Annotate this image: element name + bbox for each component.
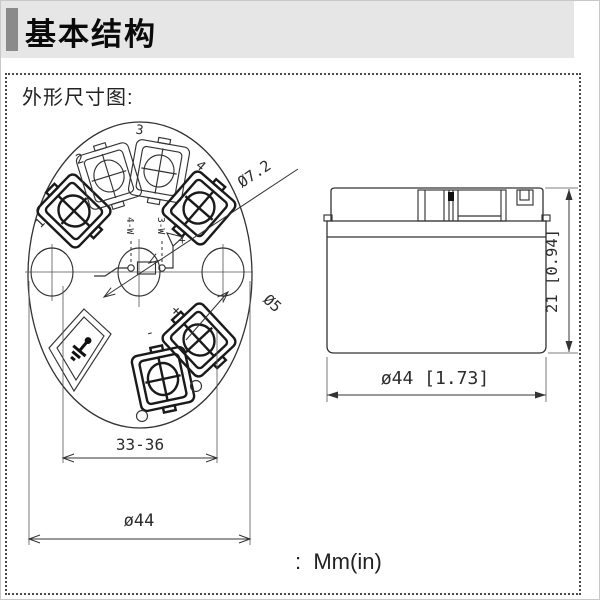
page: 基本结构 外形尺寸图:: [0, 0, 600, 600]
polarity-minus: -: [144, 324, 156, 342]
schematic-minus: -: [158, 224, 165, 237]
terminal-label-3: 3: [135, 123, 145, 139]
connector-block: [418, 190, 506, 221]
top-view: 1 2 3 4 4-W 3-W: [25, 122, 298, 545]
wiring-schematic: 4-W 3-W - +: [94, 217, 186, 276]
units-label: : Mm(in): [295, 549, 382, 575]
dim-outer-dia-side-text: ø44 [1.73]: [381, 368, 489, 389]
terminal-2: [74, 137, 145, 216]
dim-pin-hole: Ø5: [260, 291, 285, 316]
dim-mounting-span-text: 33-36: [116, 435, 164, 454]
dimension-drawing: 1 2 3 4 4-W 3-W: [1, 1, 600, 600]
dim-terminal-hole: Ø7.2: [234, 156, 274, 191]
dim-height: 21 [0.94]: [543, 188, 578, 353]
dim-outer-dia-top-text: ø44: [124, 511, 155, 531]
dim-height-text: 21 [0.94]: [543, 229, 561, 313]
pin-hole-1: [137, 411, 148, 422]
side-view: 21 [0.94] ø44 [1.73]: [324, 188, 578, 402]
terminal-label-1: 1: [32, 216, 48, 232]
ground-icon: [66, 333, 97, 365]
dim-outer-dia-side: ø44 [1.73]: [327, 357, 546, 402]
cap-notch: [517, 190, 533, 205]
dim-leader-5: Ø5: [186, 291, 285, 340]
four-wire-label: 4-W: [124, 217, 135, 234]
terminal-1: [32, 169, 117, 254]
body-outline: [327, 221, 546, 353]
module-outline: [28, 122, 252, 428]
